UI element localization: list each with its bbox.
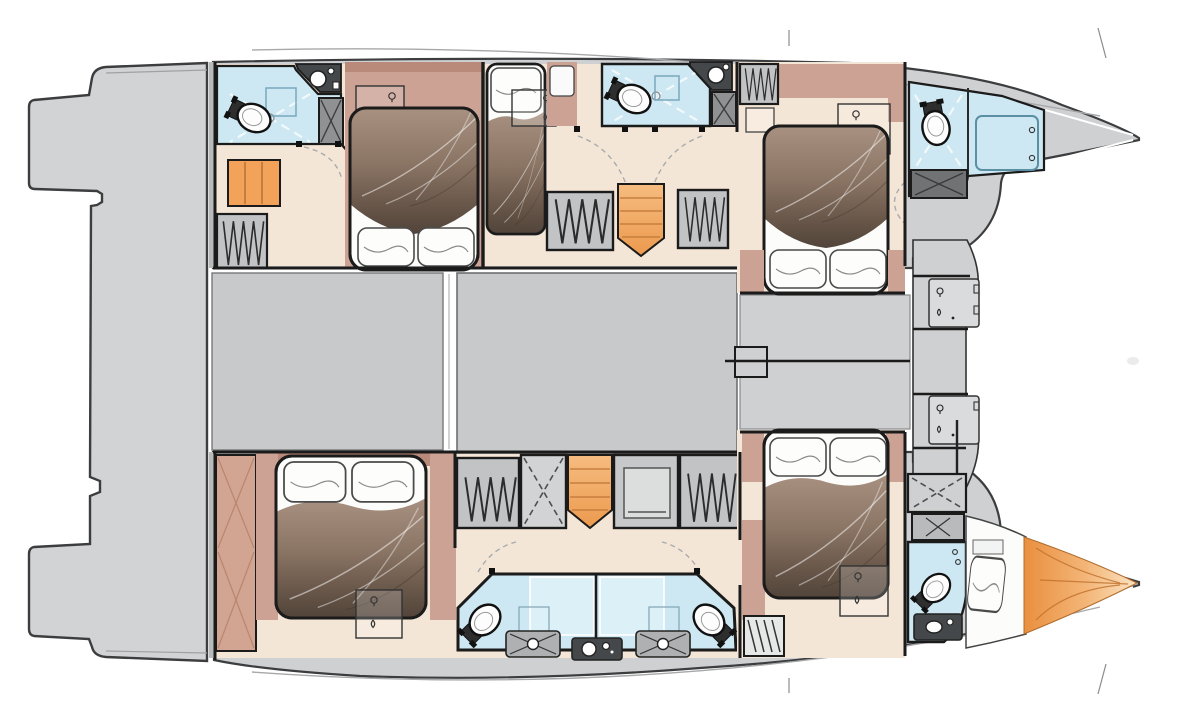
- aft-platform: [29, 63, 207, 661]
- desk: [840, 566, 888, 616]
- fwd-cabin-port: [737, 430, 905, 658]
- washbasin: [310, 71, 326, 87]
- washbasin-counter: [914, 614, 962, 640]
- side-strip-right: [430, 452, 456, 620]
- bow-locker-top: [929, 279, 979, 327]
- headboard-band: [778, 64, 905, 98]
- shared-counter: [572, 638, 622, 660]
- door-post: [296, 141, 302, 147]
- washing-machine: [624, 468, 670, 518]
- side-strip-left: [742, 432, 764, 482]
- door-post: [574, 126, 580, 132]
- mid-head-starboard: [602, 62, 736, 126]
- washbasin: [708, 67, 724, 83]
- port-rooms: [213, 430, 1137, 660]
- twin-heads-port: [456, 568, 739, 660]
- berth-shelf: [973, 540, 1003, 554]
- port-hull-aft-cap: [209, 452, 214, 658]
- deck-plan-svg: [0, 0, 1200, 723]
- side-strip-left: [740, 250, 764, 294]
- shower-drain: [652, 92, 660, 100]
- bow-band: [913, 240, 979, 492]
- shower-box: [908, 474, 966, 512]
- side-strip-right: [888, 250, 905, 294]
- washbasin-left: [506, 631, 560, 657]
- soap-dish: [333, 82, 339, 89]
- double-bed: [764, 126, 888, 294]
- double-bed: [350, 108, 478, 270]
- platform-shape: [29, 63, 207, 661]
- door-post-2: [335, 141, 341, 147]
- nightstand: [550, 66, 574, 96]
- faucet: [328, 68, 334, 74]
- faucet: [723, 64, 729, 70]
- side-column: [742, 520, 765, 620]
- catamaran-deck-plan: [0, 0, 1200, 723]
- fwd-cabin-starboard: [737, 62, 905, 294]
- cabin-headband: [345, 62, 483, 72]
- shower-panel-left: [530, 577, 594, 635]
- x-locker: [521, 455, 566, 528]
- door-post: [489, 568, 495, 574]
- saloon: [457, 273, 737, 453]
- orange-cabinet: [228, 160, 280, 206]
- shower-panel-right: [600, 577, 664, 635]
- door-post-2: [694, 568, 700, 574]
- aft-cabin-starboard: [345, 62, 483, 270]
- washbasin-right: [636, 631, 690, 657]
- aft-cockpit: [212, 273, 443, 450]
- hull-aft-cap: [209, 62, 214, 268]
- double-bed: [276, 456, 426, 618]
- wood-wardrobe: [216, 455, 256, 651]
- berth-pillow: [966, 556, 1006, 613]
- spot-mark: [1127, 357, 1139, 365]
- companionway-starboard: [547, 184, 728, 256]
- bow-berth-port: [966, 516, 1137, 648]
- vanity: [356, 590, 402, 638]
